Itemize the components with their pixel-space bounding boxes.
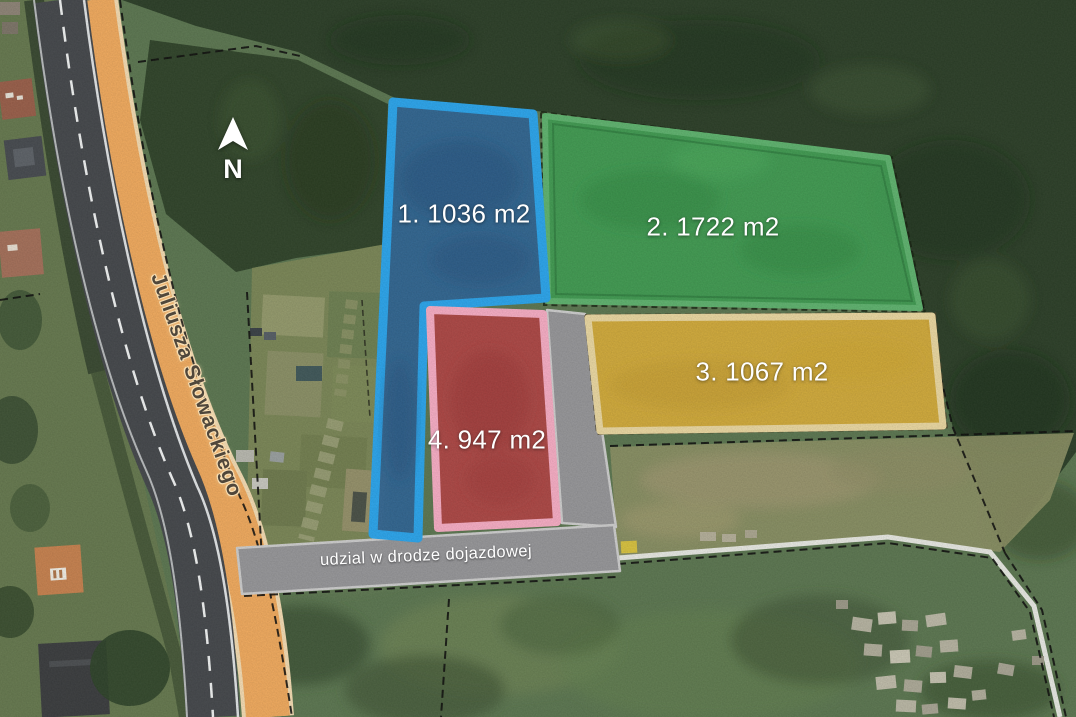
grain-light <box>0 0 1076 717</box>
plot-4-label: 4. 947 m2 <box>428 425 546 456</box>
north-compass: N <box>209 116 257 183</box>
aerial-plot-map: N Juliusza Słowackiego udzial w drodze d… <box>0 0 1076 717</box>
north-arrow-icon <box>211 116 255 152</box>
satellite-base-map <box>0 0 1076 717</box>
plot-3-label: 3. 1067 m2 <box>695 357 828 388</box>
north-label: N <box>209 156 257 183</box>
plot-2-label: 2. 1722 m2 <box>646 212 779 243</box>
plot-1-label: 1. 1036 m2 <box>397 199 530 230</box>
